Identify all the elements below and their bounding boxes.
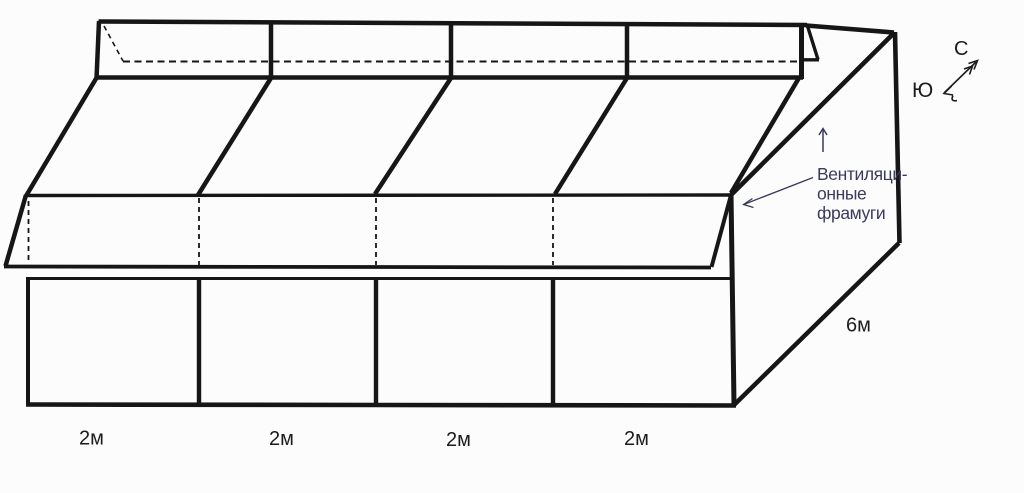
- svg-text:Вентиляци-: Вентиляци-: [817, 164, 908, 184]
- svg-text:С: С: [954, 38, 968, 60]
- svg-text:2м: 2м: [624, 428, 649, 450]
- svg-text:2м: 2м: [79, 428, 104, 450]
- svg-text:фрамуги: фрамуги: [817, 203, 885, 223]
- svg-text:онные: онные: [817, 184, 866, 204]
- svg-text:2м: 2м: [446, 429, 471, 451]
- svg-text:2м: 2м: [269, 428, 294, 450]
- svg-text:Ю: Ю: [912, 79, 933, 102]
- svg-text:6м: 6м: [846, 315, 871, 337]
